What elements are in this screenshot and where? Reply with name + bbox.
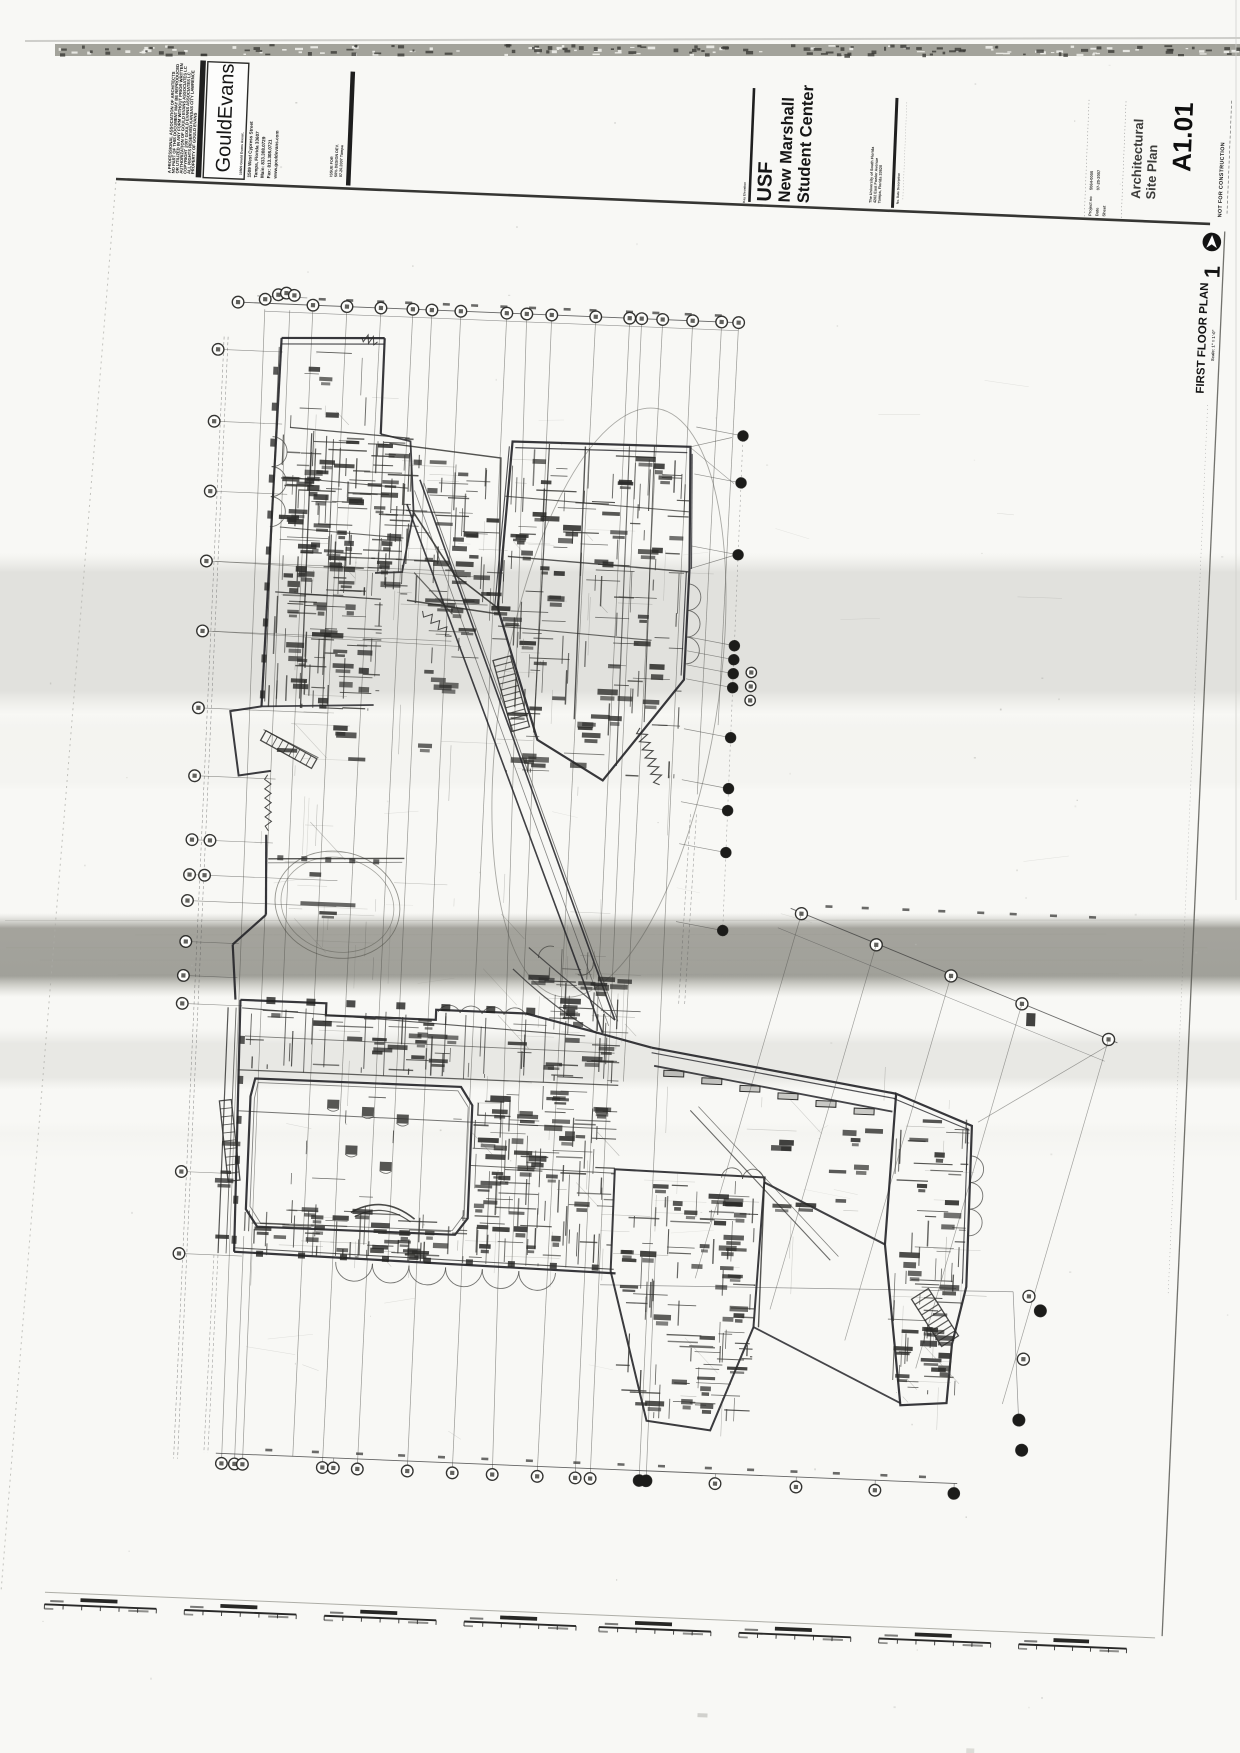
svg-text:Site Plan: Site Plan [1143, 144, 1160, 200]
svg-text:A1.01: A1.01 [1166, 102, 1199, 173]
svg-text:Sheet: Sheet [1101, 205, 1106, 217]
svg-text:5064-0000: 5064-0000 [1088, 170, 1094, 190]
svg-text:USF: USF [754, 161, 778, 202]
svg-text:GouldEvans: GouldEvans [212, 63, 238, 173]
svg-text:Date: Date [1094, 207, 1099, 217]
svg-text:Project no: Project no [1087, 196, 1093, 216]
svg-text:1: 1 [1199, 265, 1224, 278]
svg-text:07-20-2007: 07-20-2007 [1095, 169, 1101, 190]
